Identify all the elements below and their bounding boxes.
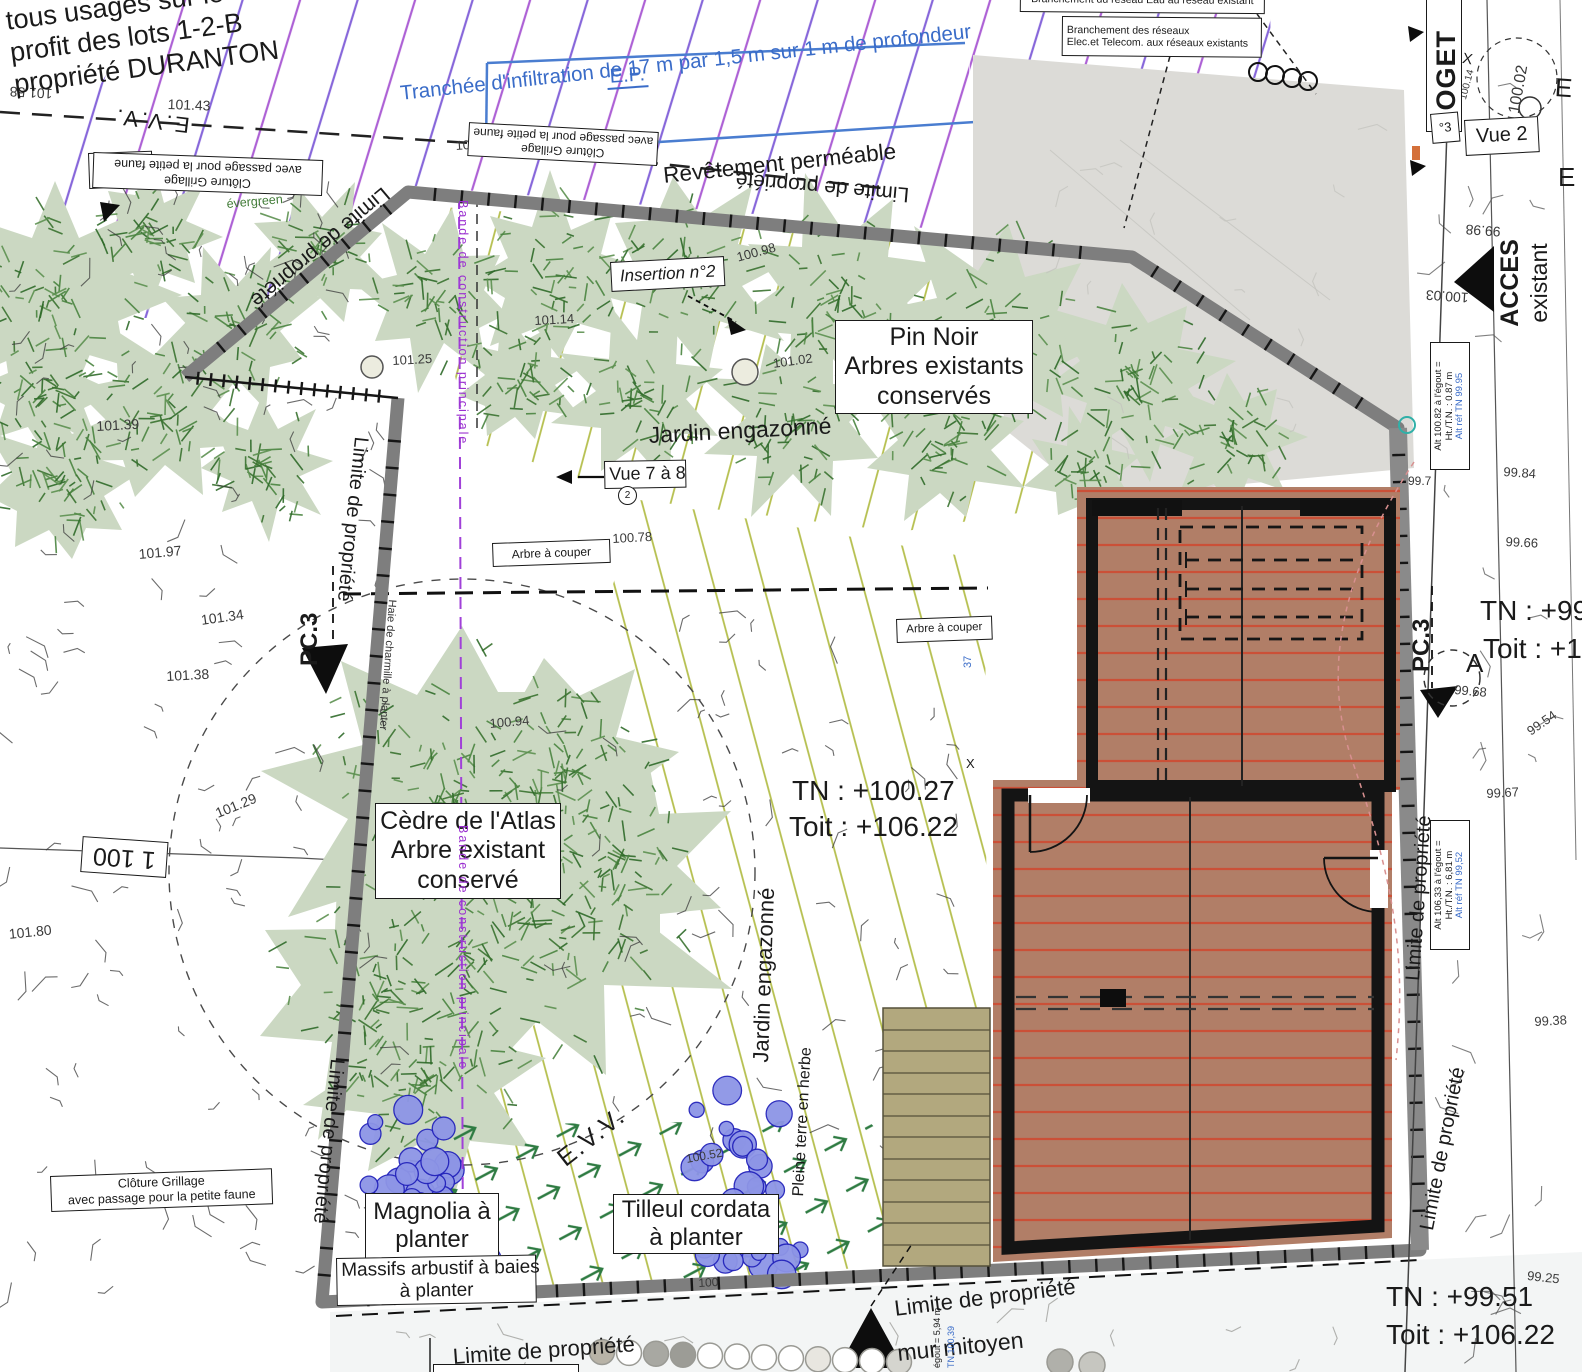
spot-elevation: 101.25 [392,351,432,368]
vue78-label: Vue 7 à 8 [609,463,681,485]
loget-label: LOGET [1431,0,1463,128]
tn-right-label: TN : +99. [1480,594,1582,627]
massifs-line2: à planter [341,1279,531,1305]
spot-elevation: 99.68 [1454,682,1488,700]
spot-elevation: 99.7 [1408,474,1431,488]
magnolia-line1: Magnolia à [370,1198,494,1226]
tn-bottom-label: TN : +99.51 [1386,1280,1533,1313]
pc3-left-label: PC.3 [296,596,324,666]
building [993,487,1400,1262]
branchement-rx-line1: Branchement des réseaux [1067,24,1190,37]
scale-1100-label: 1 100 [85,840,163,875]
acces-line2: existant [1526,218,1553,348]
spot-elevation: 101.38 [166,666,210,684]
pin-line1: Pin Noir [840,323,1028,353]
pin-line3: conservés [840,382,1028,412]
spot-elevation: 100.78 [612,529,652,546]
bande-construction-label1: Bande de construction principale [455,200,470,560]
site-plan: tous usages sur le lot A profit des lots… [0,0,1582,1372]
stairs [883,1008,990,1266]
branchement-eau-label: Branchement du réseau Eau au réseau exis… [1025,0,1260,7]
spot-elevation: 101.39 [96,416,140,434]
section-a-label: A [1466,648,1483,679]
scale-1100-box: 1 100 [80,836,168,878]
acces-line1: ACCES [1496,218,1526,348]
alt-frag-black: égout = 5,94 m [932,1292,943,1368]
spot-elevation: 99.67 [1486,784,1519,801]
beam-mark [1100,989,1126,1007]
door-opening-1 [1028,788,1090,803]
alt-frag-blue: TN 100,39 [946,1292,957,1368]
vue2-box: Vue 2 [1464,116,1540,156]
toit-bottom-label: Toit : +106.22 [1386,1318,1555,1351]
orange-mark [1412,146,1420,160]
x-mark-corner: X [966,756,975,771]
bande-construction-label2: Bande de construction principale [455,825,470,1185]
tilleul-line1: Tilleul cordata [618,1196,774,1224]
branchement-rx-box: Branchement des réseaux Elec.et Telecom.… [1062,16,1262,58]
tilleul-box: Tilleul cordata à planter [613,1194,779,1254]
toit-center-label: Toit : +106.22 [789,810,958,843]
insertion2-label: Insertion n°2 [615,261,720,286]
vue78-box: Vue 7 à 8 [604,460,686,489]
toit-right-label: Toit : +10 [1483,632,1582,665]
arbre-a-couper-box1: Arbre à couper [492,539,611,567]
arbre-a-couper-label: Arbre à couper [493,544,609,562]
spot-elevation: 100.03 [1425,287,1469,306]
cut-label-box [433,1364,579,1372]
vue78-circle2: 2 [618,486,637,505]
branchement-rx-line2: Elec.et Telecom. aux réseaux existants [1067,36,1248,50]
alt-box-2: Alt 106,33 à l'égout = Ht./T.N. : 6,81 m… [1430,820,1470,950]
spot-elevation: 99.84 [1503,464,1537,481]
spot-elevation: 99.66 [1505,534,1538,551]
tn-center-label: TN : +100.27 [792,774,955,807]
branchement-eau-box: Branchement du réseau Eau au réseau exis… [1020,0,1265,14]
e-fragment-2: E [1558,162,1575,193]
pc3-right-label: PC.3 [1408,602,1436,672]
pin-noir-box: Pin Noir Arbres existants conservés [835,320,1033,414]
spot-elevation: 99.38 [1534,1012,1567,1029]
massifs-box: Massifs arbustif à baies à planter [336,1255,537,1306]
arbre-a-couper-label: Arbre à couper [897,621,991,638]
acces-label: ACCES existant [1496,218,1548,348]
spot-elevation: 100 [698,1275,719,1290]
spot-elevation: 37 [962,656,974,668]
n3-box: °3 [1430,112,1461,144]
circle2-label: 2 [625,490,631,502]
spot-elevation: 101.14 [534,311,574,328]
e-fragment-1: E [1554,72,1573,104]
massifs-line1: Massifs arbustif à baies [341,1256,531,1282]
n3-label: °3 [1432,119,1459,137]
insertion2-box: Insertion n°2 [610,256,725,292]
pin-line2: Arbres existants [840,352,1028,382]
alt1-line3: Alt réf TN 99.95 [1455,345,1466,467]
magnolia-box: Magnolia à planter [365,1193,499,1259]
vue2-label: Vue 2 [1469,123,1534,150]
alt2-line3: Alt réf TN 99,52 [1455,823,1466,947]
magnolia-line2: planter [370,1226,494,1254]
arbre-a-couper-box2: Arbre à couper [896,616,993,643]
tilleul-line2: à planter [618,1224,774,1252]
alt-box-1: Alt 100.82 à l'égout = Ht./T.N. : 0.87 m… [1430,342,1470,470]
